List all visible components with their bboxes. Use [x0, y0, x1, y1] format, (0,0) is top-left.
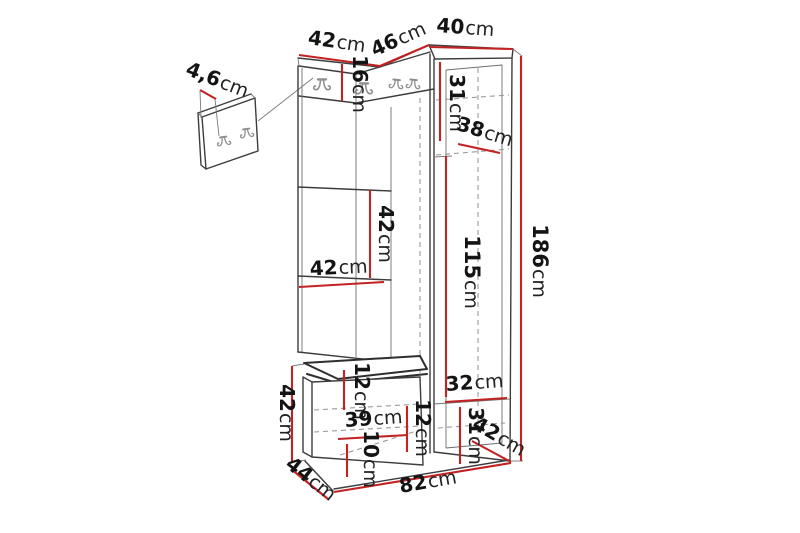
wall-hook-panel — [198, 78, 313, 169]
coat-hook-icon — [389, 79, 403, 89]
panel-leader-line — [258, 78, 313, 121]
dim-line-shelf-width — [299, 282, 384, 287]
dim-label-total-height: 186cm — [528, 224, 552, 298]
dimension-labels: 4,6cm 42cm 46cm 40cm 16cm 31cm 38cm 42cm… — [183, 13, 552, 506]
dim-label-bench-base-height: 10cm — [359, 430, 383, 488]
cabinet-front-right-edge — [510, 58, 512, 461]
dim-label-panel-thickness: 4,6cm — [183, 57, 253, 103]
coat-hook-icon — [314, 79, 330, 89]
furniture-dimension-diagram: 4,6cm 42cm 46cm 40cm 16cm 31cm 38cm 42cm… — [0, 0, 800, 533]
dim-label-shelf-gap-height: 42cm — [374, 205, 398, 263]
bench-left-face — [303, 377, 312, 457]
shelf-edge-upper — [298, 187, 391, 191]
door-extension-line — [434, 156, 452, 157]
dim-label-top-left-width: 42cm — [307, 25, 368, 57]
dim-line-panel-thickness — [200, 90, 216, 99]
bench-extension-top — [292, 364, 304, 366]
dim-label-bench-height: 42cm — [275, 384, 299, 442]
dim-label-hook-band-height: 16cm — [348, 55, 372, 113]
dim-label-cabinet-lower-width: 32cm — [445, 368, 504, 396]
dim-label-bench-side-width: 12cm — [411, 399, 435, 457]
dim-label-bench-inner-width: 39cm — [344, 404, 403, 432]
height-extension-top — [513, 49, 522, 56]
roof-left-connector — [298, 58, 299, 66]
dim-label-cabinet-door-height: 115cm — [460, 235, 484, 309]
dim-label-bench-depth: 44cm — [281, 451, 341, 506]
dim-label-shelf-width: 42cm — [309, 254, 368, 281]
dim-label-total-width: 82cm — [397, 464, 458, 498]
dim-label-top-right-width: 40cm — [436, 13, 495, 41]
coat-hook-icon — [406, 79, 420, 89]
diagram-canvas: 4,6cm 42cm 46cm 40cm 16cm 31cm 38cm 42cm… — [0, 0, 800, 533]
